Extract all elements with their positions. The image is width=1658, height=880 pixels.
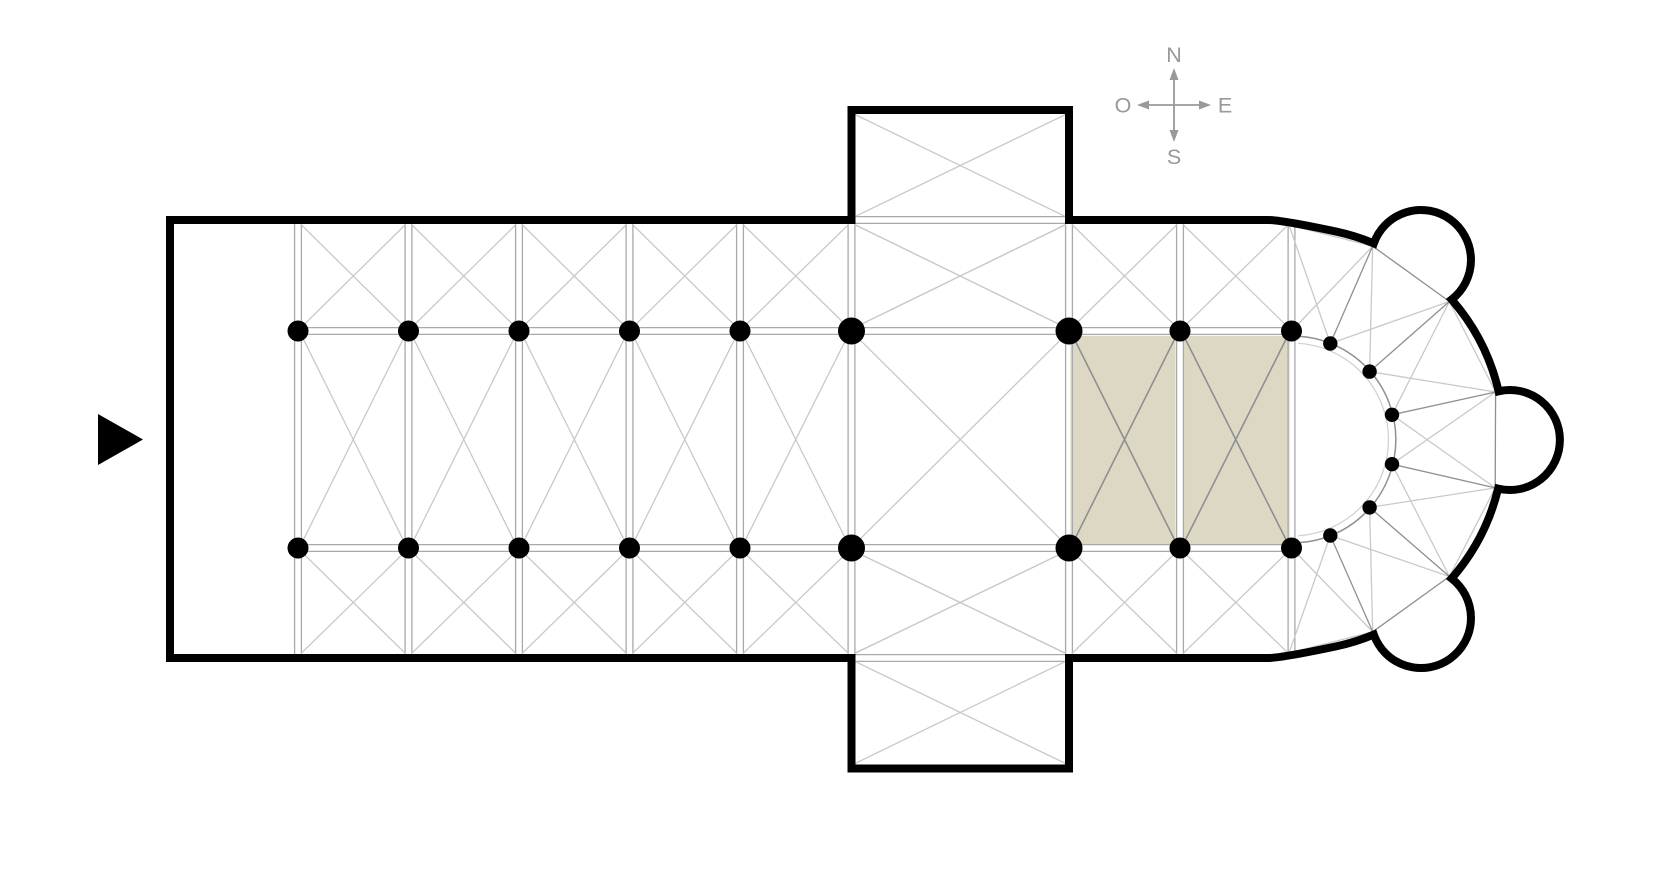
svg-text:S: S	[1167, 145, 1181, 169]
svg-text:N: N	[1166, 43, 1182, 67]
svg-text:O: O	[1115, 94, 1132, 118]
svg-text:E: E	[1218, 94, 1232, 118]
